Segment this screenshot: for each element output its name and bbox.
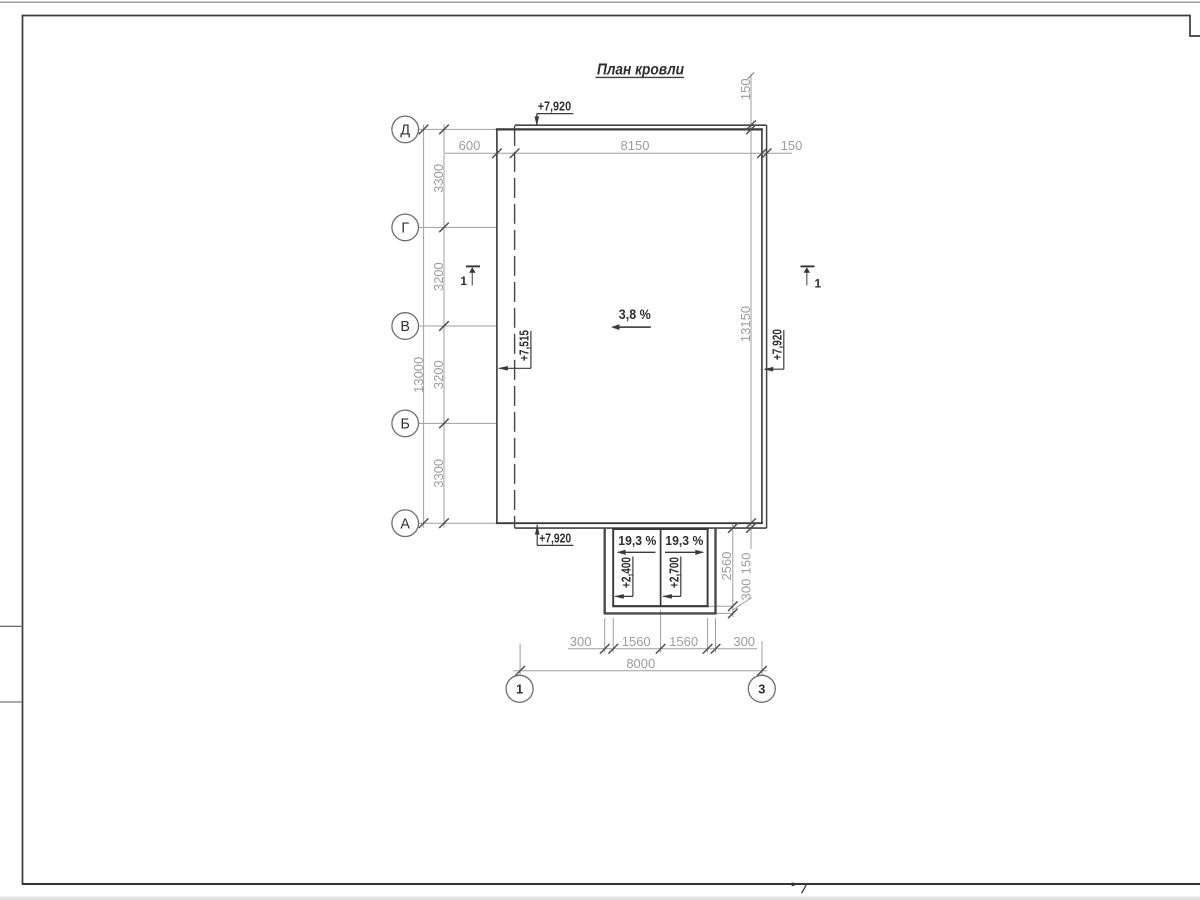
svg-text:+7,920: +7,920 <box>539 531 571 546</box>
svg-text:19,3 %: 19,3 % <box>665 533 704 548</box>
svg-text:В: В <box>400 319 410 335</box>
svg-text:2560: 2560 <box>719 552 734 581</box>
svg-text:+7,920: +7,920 <box>538 99 571 114</box>
svg-text:19,3 %: 19,3 % <box>618 533 657 548</box>
svg-text:3200: 3200 <box>431 360 446 389</box>
svg-text:300: 300 <box>739 579 754 601</box>
svg-text:3,8 %: 3,8 % <box>619 307 651 322</box>
svg-text:600: 600 <box>459 138 481 153</box>
svg-text:А: А <box>400 516 410 532</box>
svg-text:3: 3 <box>758 682 765 697</box>
svg-text:3300: 3300 <box>431 164 446 193</box>
svg-text:300: 300 <box>733 634 755 649</box>
svg-text:3200: 3200 <box>431 262 446 291</box>
svg-text:150: 150 <box>738 553 753 575</box>
svg-text:+2,400: +2,400 <box>619 557 634 588</box>
svg-text:+2,700: +2,700 <box>667 557 682 588</box>
svg-text:8000: 8000 <box>626 656 655 671</box>
svg-text:Б: Б <box>401 417 410 433</box>
svg-text:150: 150 <box>781 138 803 153</box>
svg-text:3300: 3300 <box>431 459 446 488</box>
svg-text:Г: Г <box>401 221 409 237</box>
svg-text:8150: 8150 <box>621 138 650 153</box>
svg-text:1560: 1560 <box>669 634 698 649</box>
svg-text:1: 1 <box>460 274 467 288</box>
svg-text:+7,515: +7,515 <box>517 330 532 361</box>
svg-text:1560: 1560 <box>622 634 651 649</box>
svg-text:150: 150 <box>738 78 753 100</box>
svg-text:+7,920: +7,920 <box>770 329 785 360</box>
svg-text:13000: 13000 <box>411 357 426 393</box>
svg-text:1: 1 <box>516 682 523 697</box>
svg-text:1: 1 <box>815 276 822 290</box>
svg-text:300: 300 <box>570 634 592 649</box>
svg-text:13150: 13150 <box>738 306 753 342</box>
svg-text:План кровли: План кровли <box>597 62 685 79</box>
svg-text:Д: Д <box>400 123 410 139</box>
